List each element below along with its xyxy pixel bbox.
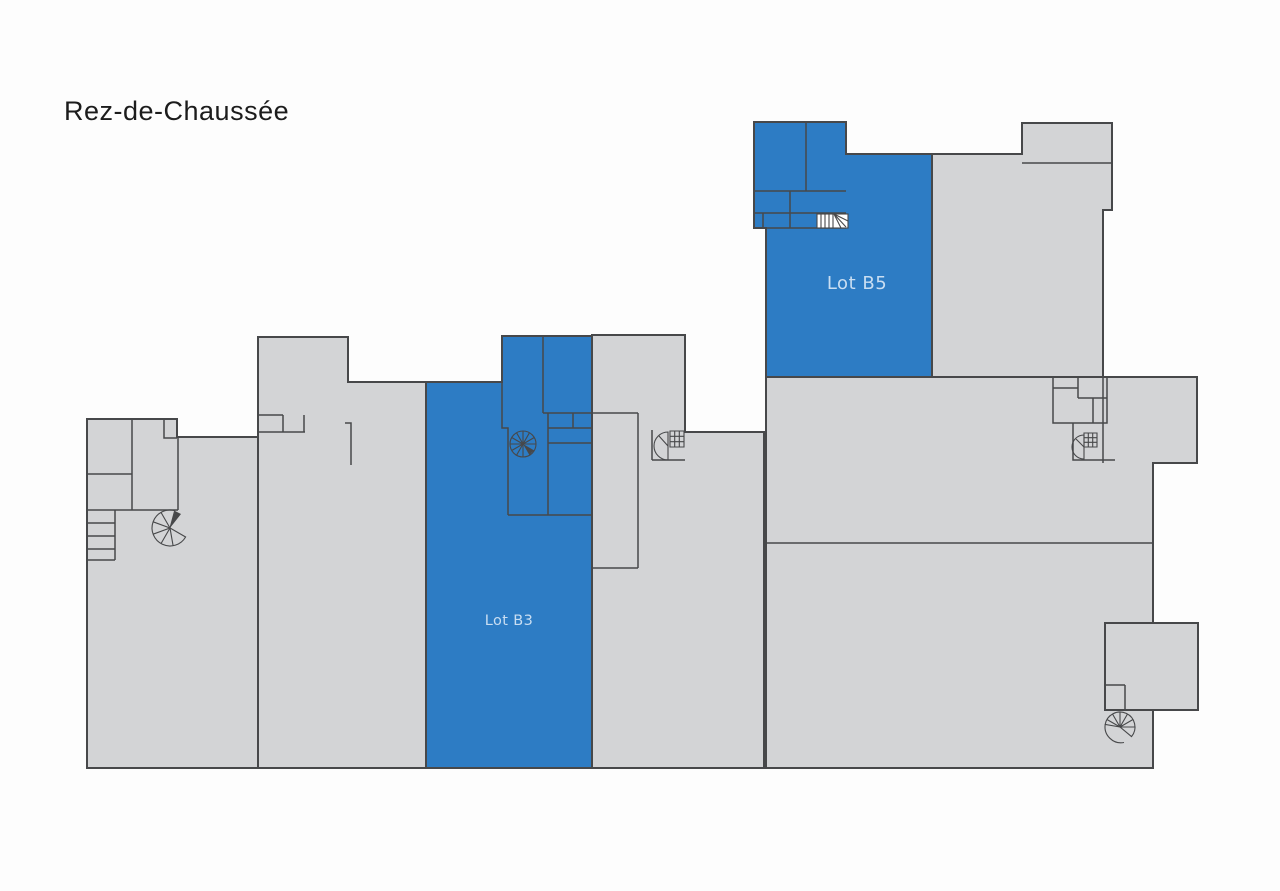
- building-annex-square: [1105, 623, 1198, 710]
- floor-plan-canvas: Lot B3: [0, 0, 1280, 891]
- lot-b3-label: Lot B3: [485, 613, 534, 629]
- lot-b5-region[interactable]: Lot B5: [754, 122, 932, 377]
- straight-stairs-icon: [817, 214, 848, 228]
- lot-b5-label: Lot B5: [827, 273, 887, 294]
- building-center-block: [592, 335, 764, 768]
- lot-b3-region[interactable]: Lot B3: [426, 336, 592, 768]
- spiral-stair-icon: [510, 431, 536, 457]
- building-right-block: [766, 377, 1198, 768]
- building-left-wing: [87, 419, 258, 768]
- building-b5-gray-block: [932, 123, 1112, 377]
- building-tower-block: [258, 337, 426, 768]
